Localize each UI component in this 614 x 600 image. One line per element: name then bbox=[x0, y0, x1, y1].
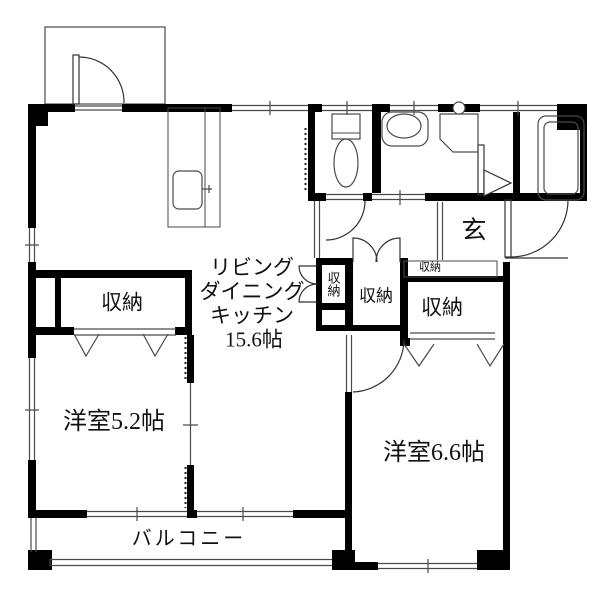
front-door-arc bbox=[511, 200, 568, 257]
room-5-2-label: 洋室5.2帖 bbox=[63, 410, 165, 434]
front-door-leaf bbox=[505, 200, 511, 257]
floor-plan: リビング ダイニング キッチン 15.6帖 収納 洋室5.2帖 収納 収納 収納… bbox=[0, 0, 614, 600]
washbasin-icon bbox=[382, 112, 428, 146]
closet-hall-label: 収納 bbox=[359, 288, 393, 305]
hall-closet-door-left bbox=[353, 238, 377, 262]
ldk-label-size: 15.6帖 bbox=[225, 330, 283, 351]
walls bbox=[28, 104, 587, 570]
closet-6-6-small-label: 収納 bbox=[419, 263, 441, 274]
room-6-6-door-arc bbox=[353, 340, 404, 392]
bath-door-frame bbox=[478, 145, 484, 195]
porch-door-arc bbox=[79, 57, 124, 103]
ldk-label-line2: ダイニング bbox=[200, 282, 305, 303]
kitchen-counter-icon bbox=[168, 108, 220, 227]
ldk-label-line3: キッチン bbox=[210, 306, 294, 327]
porch-door-leaf bbox=[73, 55, 79, 104]
v-mark bbox=[404, 344, 434, 366]
toilet-door-arc bbox=[326, 201, 365, 240]
toilet-icon bbox=[332, 114, 360, 187]
entrance-label: 玄 bbox=[461, 219, 486, 244]
v-mark bbox=[143, 334, 168, 356]
hall-closet-door-right bbox=[376, 238, 400, 262]
closet-5-2-label: 収納 bbox=[101, 293, 143, 314]
closet-6-6-label: 収納 bbox=[421, 298, 463, 319]
v-mark bbox=[74, 334, 99, 356]
balcony-label: バルコニー bbox=[132, 529, 247, 549]
ldk-label-line1: リビング bbox=[210, 258, 294, 279]
bath-folding-door-icon bbox=[484, 170, 511, 196]
v-mark bbox=[477, 344, 504, 366]
room-6-6-label: 洋室6.6帖 bbox=[383, 441, 485, 465]
floor-plan-drawing bbox=[0, 0, 614, 600]
closet-narrow-label: 収納 bbox=[327, 271, 340, 297]
